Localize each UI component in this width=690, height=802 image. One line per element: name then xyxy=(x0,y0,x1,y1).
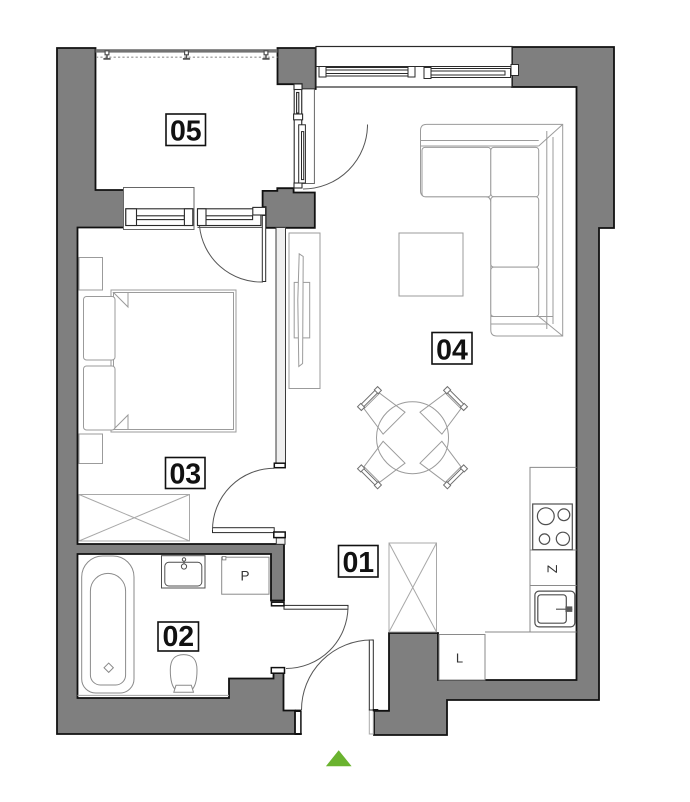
svg-text:P: P xyxy=(240,569,249,584)
svg-text:L: L xyxy=(456,651,463,666)
svg-text:03: 03 xyxy=(169,459,201,491)
svg-text:04: 04 xyxy=(436,334,468,366)
svg-text:Z: Z xyxy=(544,564,560,573)
svg-text:02: 02 xyxy=(162,621,194,653)
svg-text:05: 05 xyxy=(170,116,202,148)
svg-text:01: 01 xyxy=(342,547,374,579)
